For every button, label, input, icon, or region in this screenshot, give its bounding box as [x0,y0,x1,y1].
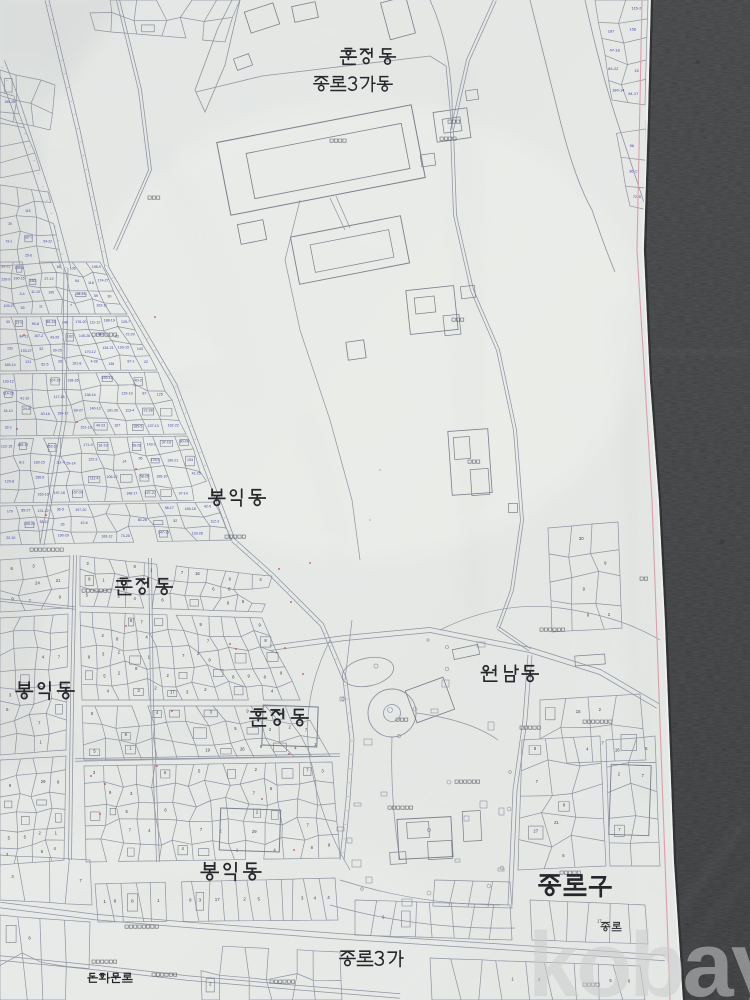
svg-text:43-20: 43-20 [50,336,59,340]
svg-text:148-17: 148-17 [126,492,137,496]
svg-text:137-13: 137-13 [148,424,159,428]
svg-text:94-17: 94-17 [628,91,639,96]
svg-text:58-28: 58-28 [132,444,141,448]
svg-text:8-2: 8-2 [19,460,24,464]
svg-text:90-8: 90-8 [32,322,39,326]
svg-text:97-14: 97-14 [179,491,188,495]
svg-text:167-7: 167-7 [24,236,33,240]
svg-text:181-26: 181-26 [107,408,118,412]
svg-text:3-4: 3-4 [19,292,24,296]
svg-text:109-27: 109-27 [3,304,14,308]
svg-text:36-5: 36-5 [57,508,64,512]
svg-text:64: 64 [75,279,79,283]
svg-text:4-28: 4-28 [90,360,97,364]
svg-text:103-11: 103-11 [96,303,107,307]
svg-text:59-14: 59-14 [66,462,75,466]
svg-text:183-15: 183-15 [34,461,45,465]
svg-text:106: 106 [70,267,76,271]
svg-text:156-5: 156-5 [35,475,44,479]
svg-text:27: 27 [533,829,538,834]
svg-text:87-1: 87-1 [127,360,134,364]
svg-text:28-13: 28-13 [76,292,85,296]
svg-text:42-6: 42-6 [80,521,87,525]
svg-text:39: 39 [21,306,25,310]
svg-text:179: 179 [7,509,13,513]
svg-text:158: 158 [629,26,636,31]
svg-text:105: 105 [48,291,54,295]
svg-text:159-28: 159-28 [4,100,15,104]
svg-text:190-29: 190-29 [58,533,69,537]
svg-text:170-12: 170-12 [85,350,96,354]
svg-text:37-19: 37-19 [162,440,171,444]
svg-text:167-2: 167-2 [34,334,43,338]
svg-text:121: 121 [25,360,31,364]
svg-text:58-26: 58-26 [140,475,149,479]
svg-text:122-15: 122-15 [1,444,12,448]
svg-text:154-17: 154-17 [57,411,68,415]
svg-text:185-5: 185-5 [133,425,142,429]
svg-text:96: 96 [630,143,635,148]
svg-text:193-27: 193-27 [21,349,32,353]
svg-text:33: 33 [6,320,10,324]
svg-text:197-27: 197-27 [145,491,156,495]
svg-text:197-20: 197-20 [75,508,86,512]
svg-text:85-27: 85-27 [21,508,30,512]
svg-text:40-16: 40-16 [41,412,50,416]
svg-text:196-10: 196-10 [156,475,167,479]
svg-text:30-25: 30-25 [53,348,62,352]
svg-text:14: 14 [122,460,126,464]
svg-text:22: 22 [144,360,148,364]
svg-text:171-9: 171-9 [83,443,92,447]
svg-text:73-1: 73-1 [5,240,12,244]
svg-text:118: 118 [88,281,94,285]
svg-text:61: 61 [57,265,61,269]
svg-text:41-25: 41-25 [192,472,201,476]
svg-text:73-25: 73-25 [121,534,130,538]
svg-text:125: 125 [157,392,163,396]
svg-text:122-3: 122-3 [88,458,97,462]
svg-text:80-24: 80-24 [179,440,188,444]
svg-text:182: 182 [97,332,103,336]
svg-text:11: 11 [39,305,43,309]
svg-text:21-28: 21-28 [143,409,152,413]
svg-text:69-27: 69-27 [74,408,83,412]
svg-text:165-16: 165-16 [185,507,196,511]
svg-text:24-8: 24-8 [23,407,30,411]
svg-text:15: 15 [634,68,639,73]
svg-text:26: 26 [61,522,65,526]
svg-text:32-1: 32-1 [5,425,12,429]
svg-text:17: 17 [170,689,175,694]
svg-text:198-9: 198-9 [92,265,101,269]
svg-text:29: 29 [252,829,257,834]
svg-text:52: 52 [39,347,43,351]
svg-text:95: 95 [139,457,143,461]
svg-text:26: 26 [240,746,245,751]
svg-text:55-11: 55-11 [40,520,49,524]
svg-text:190-21: 190-21 [167,458,178,462]
svg-text:22-10: 22-10 [6,536,15,540]
svg-text:16-19: 16-19 [98,443,107,447]
svg-text:24: 24 [35,581,40,586]
svg-text:138-16: 138-16 [84,393,95,397]
svg-text:30: 30 [8,222,12,226]
svg-text:148: 148 [62,321,68,325]
svg-text:187: 187 [608,29,615,34]
svg-text:29: 29 [41,779,46,784]
svg-text:112-3: 112-3 [210,520,219,524]
svg-text:140-13: 140-13 [89,406,100,410]
svg-text:98-17: 98-17 [165,506,174,510]
svg-text:117-18: 117-18 [54,395,65,399]
svg-text:34-10: 34-10 [3,409,12,413]
svg-text:125-7: 125-7 [121,320,130,324]
svg-text:15: 15 [576,709,581,714]
svg-text:72-8: 72-8 [633,194,642,199]
svg-text:19: 19 [205,748,210,753]
svg-text:111-12: 111-12 [90,321,101,325]
svg-text:161-8: 161-8 [72,361,81,365]
svg-text:113-4: 113-4 [125,409,134,413]
svg-text:106-12: 106-12 [106,475,117,479]
svg-text:52: 52 [173,519,177,523]
svg-text:17: 17 [215,897,221,902]
svg-text:197-18: 197-18 [54,491,65,495]
svg-text:134-21: 134-21 [102,346,113,350]
svg-text:59: 59 [94,294,98,298]
svg-text:188-19: 188-19 [104,318,115,322]
svg-text:16: 16 [195,571,200,576]
svg-text:102: 102 [67,334,73,338]
svg-text:176-20: 176-20 [75,320,86,324]
svg-text:30: 30 [107,295,111,299]
svg-text:kobay: kobay [528,914,750,1000]
svg-text:87: 87 [142,391,146,395]
svg-text:13-9: 13-9 [15,320,22,324]
svg-text:190-22: 190-22 [24,522,35,526]
svg-text:115: 115 [25,209,31,213]
svg-text:162-22: 162-22 [168,424,179,428]
svg-text:151-19: 151-19 [80,426,91,430]
svg-text:178-9: 178-9 [150,458,159,462]
svg-text:199-14: 199-14 [101,376,112,380]
svg-text:62-5: 62-5 [41,363,48,367]
svg-text:129-8: 129-8 [5,480,14,484]
svg-text:7: 7 [70,304,72,308]
svg-text:167: 167 [114,423,120,427]
svg-text:133-28: 133-28 [192,531,203,535]
svg-text:163-19: 163-19 [37,493,48,497]
svg-text:150: 150 [30,279,36,283]
svg-text:169-17: 169-17 [17,443,28,447]
svg-text:115-2: 115-2 [632,6,643,11]
svg-text:126-9: 126-9 [1,278,10,282]
svg-text:193-15: 193-15 [118,345,129,349]
svg-text:165-14: 165-14 [4,363,15,367]
svg-text:28: 28 [58,360,62,364]
svg-text:111-4: 111-4 [56,460,65,464]
svg-text:25-6: 25-6 [25,253,32,257]
svg-text:16: 16 [615,747,620,752]
svg-text:129-19: 129-19 [121,392,132,396]
svg-text:30: 30 [579,536,584,541]
svg-text:114-25: 114-25 [3,391,14,395]
svg-text:153: 153 [187,458,193,462]
svg-text:174-27: 174-27 [97,279,108,283]
svg-text:21: 21 [554,820,559,825]
svg-text:138: 138 [108,362,114,366]
svg-text:107-27: 107-27 [49,378,60,382]
svg-text:198-5: 198-5 [14,266,23,270]
svg-text:106-12: 106-12 [101,534,112,538]
svg-text:143: 143 [137,347,143,351]
svg-text:41-10: 41-10 [20,397,29,401]
svg-text:143-1: 143-1 [147,443,156,447]
svg-text:40-3: 40-3 [135,379,142,383]
svg-text:107-24: 107-24 [72,491,83,495]
svg-text:152: 152 [7,347,13,351]
svg-text:11-10: 11-10 [31,290,40,294]
svg-text:111-4: 111-4 [90,477,99,481]
svg-text:72-29: 72-29 [125,333,134,337]
svg-text:147-15: 147-15 [158,531,169,535]
svg-text:190-15: 190-15 [13,276,24,280]
svg-text:49-23: 49-23 [96,423,105,427]
svg-text:47-18: 47-18 [609,48,620,53]
svg-text:145-26: 145-26 [79,334,90,338]
svg-text:184-14: 184-14 [612,88,625,93]
svg-text:80-26: 80-26 [138,518,147,522]
svg-text:133-12: 133-12 [3,380,14,384]
svg-text:56-15: 56-15 [46,320,55,324]
svg-text:27-12: 27-12 [44,277,53,281]
svg-text:54-22: 54-22 [43,239,52,243]
svg-text:84-22: 84-22 [608,66,619,71]
svg-text:153-17: 153-17 [46,444,57,448]
svg-text:42-9: 42-9 [204,505,211,509]
svg-text:21: 21 [56,578,61,583]
svg-text:131-12: 131-12 [37,509,48,513]
svg-text:198-26: 198-26 [67,379,78,383]
